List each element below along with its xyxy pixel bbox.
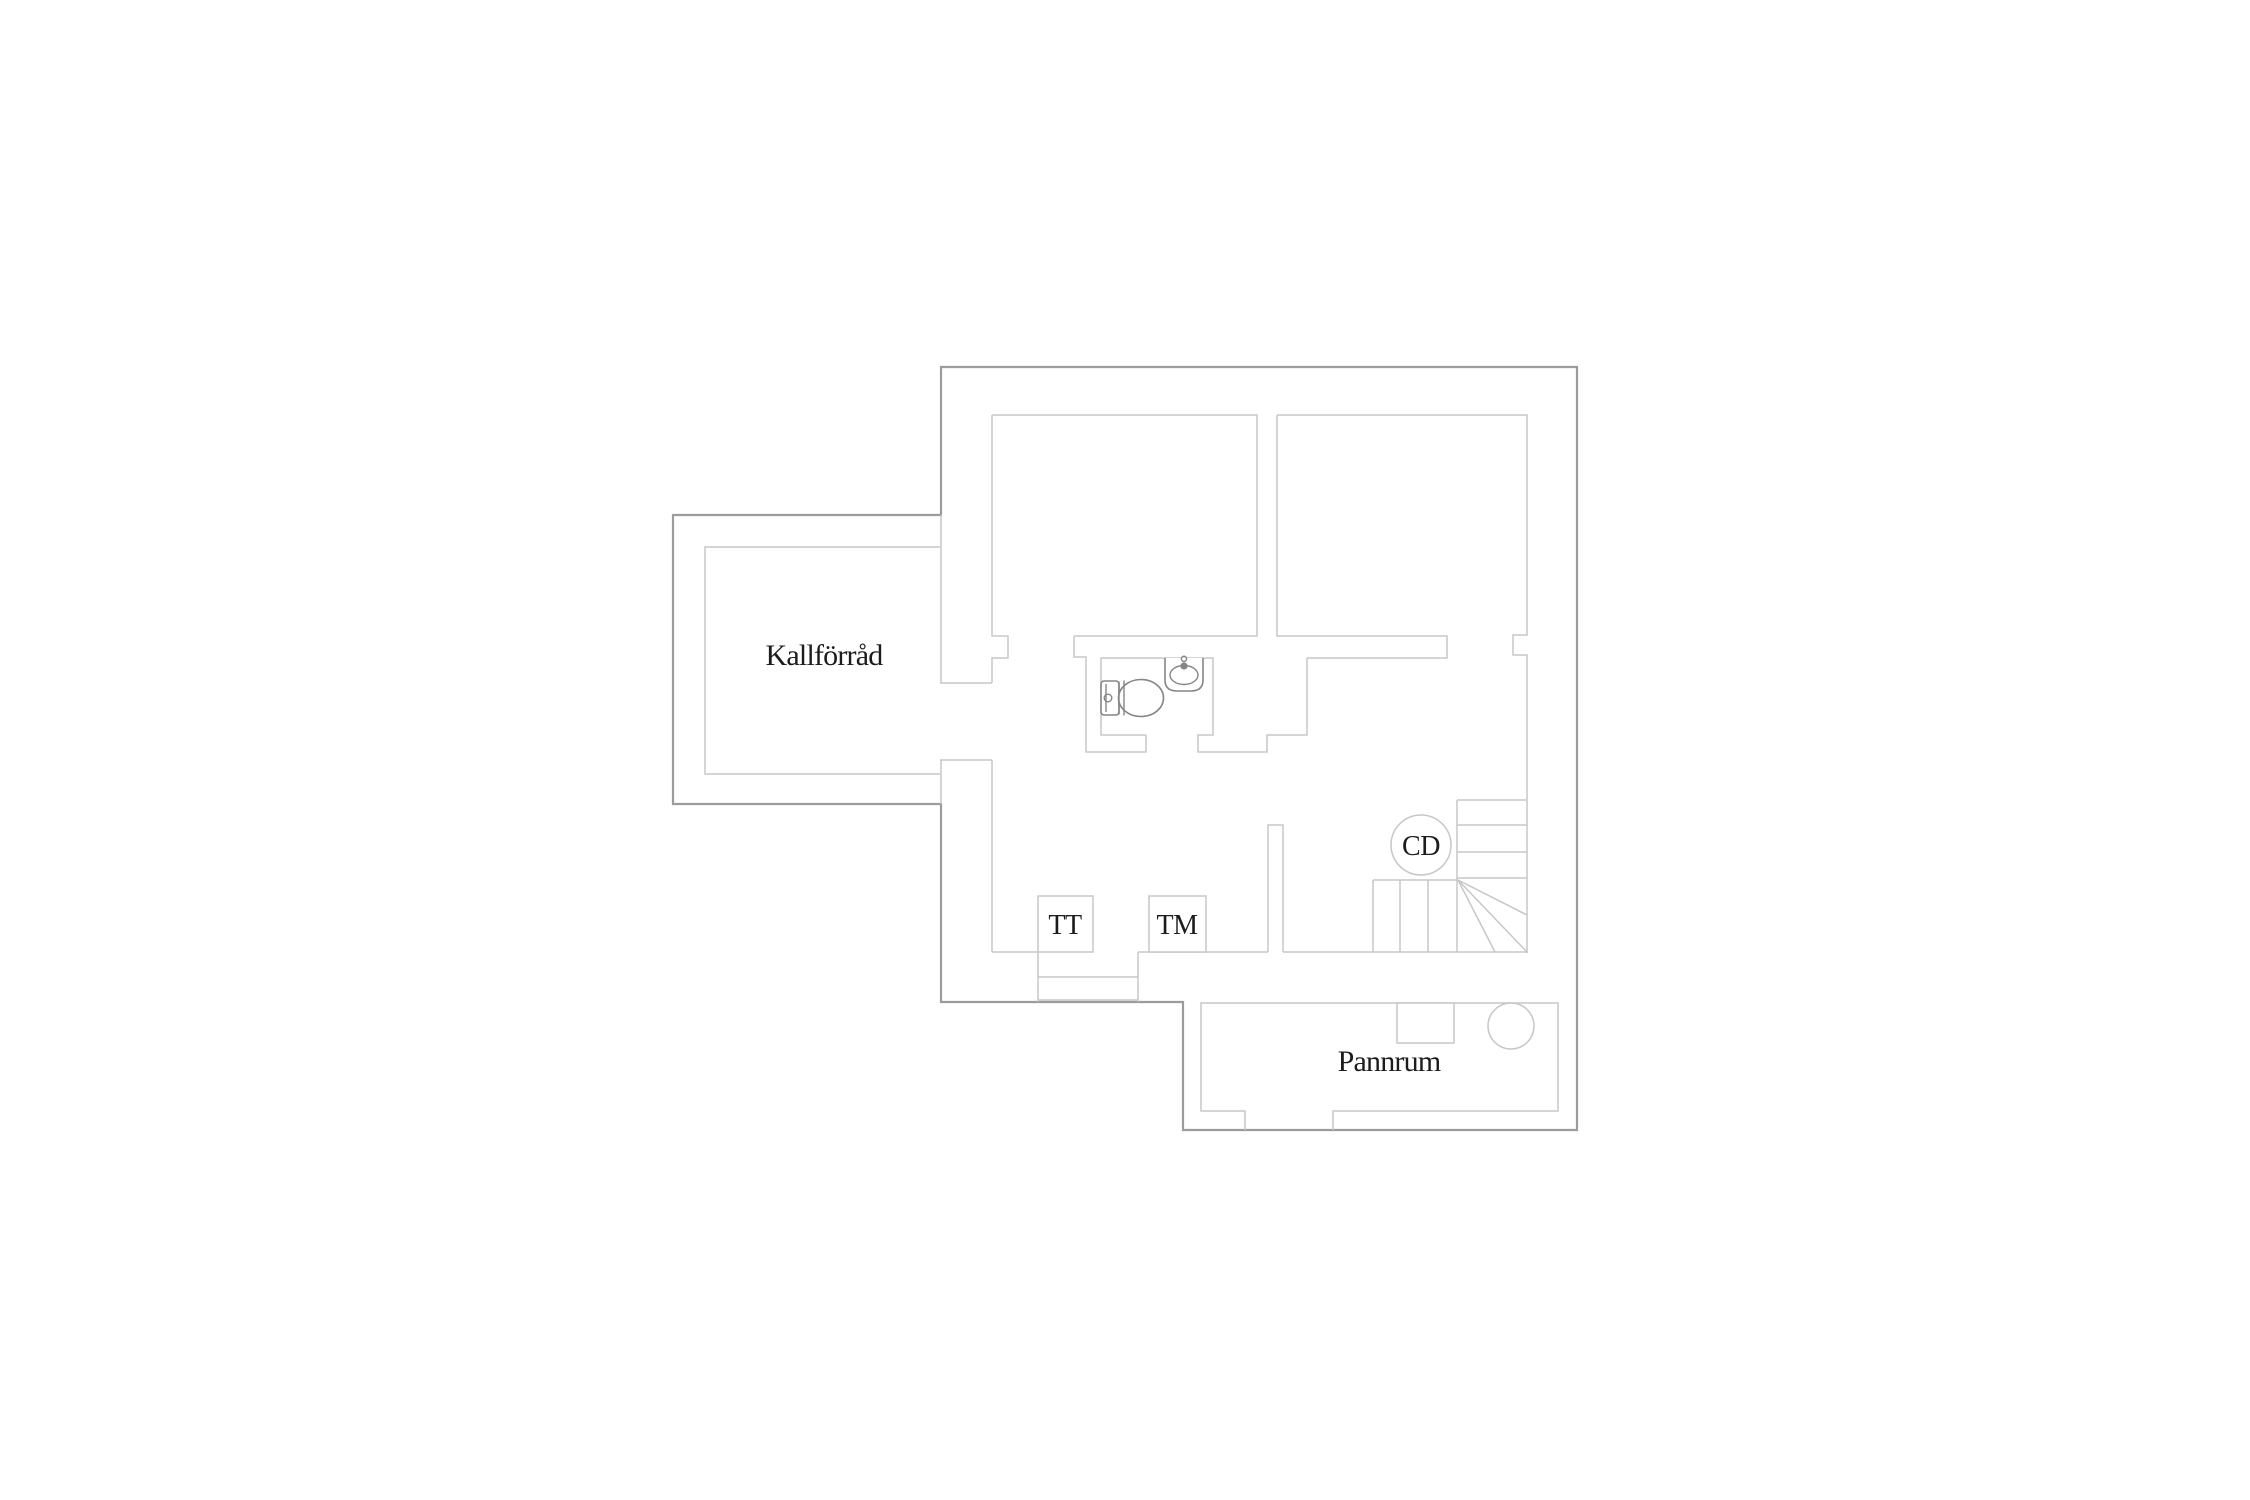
- stair-winder-lines: [1458, 880, 1527, 952]
- label-tumble-dryer: TT: [1048, 910, 1082, 941]
- toilet: [1101, 680, 1164, 717]
- door-steps: [1038, 952, 1138, 1002]
- boiler-tank-circle: [1488, 1003, 1534, 1049]
- floor-plan: Kallförråd Pannrum TT TM CD: [0, 0, 2250, 1500]
- label-cd: CD: [1402, 831, 1440, 862]
- label-kallforrad: Kallförråd: [766, 639, 884, 672]
- floor-plan-page: Kallförråd Pannrum TT TM CD: [0, 0, 2250, 1500]
- toilet-bowl: [1119, 680, 1164, 717]
- hall-left-wall: [992, 415, 1008, 952]
- boiler-box: [1397, 1003, 1454, 1043]
- label-washing-machine: TM: [1157, 910, 1199, 941]
- sink: [1165, 656, 1203, 691]
- room-upper-right-walls: [1277, 415, 1527, 953]
- label-pannrum: Pannrum: [1338, 1045, 1441, 1078]
- sink-faucet: [1180, 662, 1187, 669]
- interior-walls: [705, 415, 1558, 1130]
- laundry-divider-wall: [1268, 825, 1283, 952]
